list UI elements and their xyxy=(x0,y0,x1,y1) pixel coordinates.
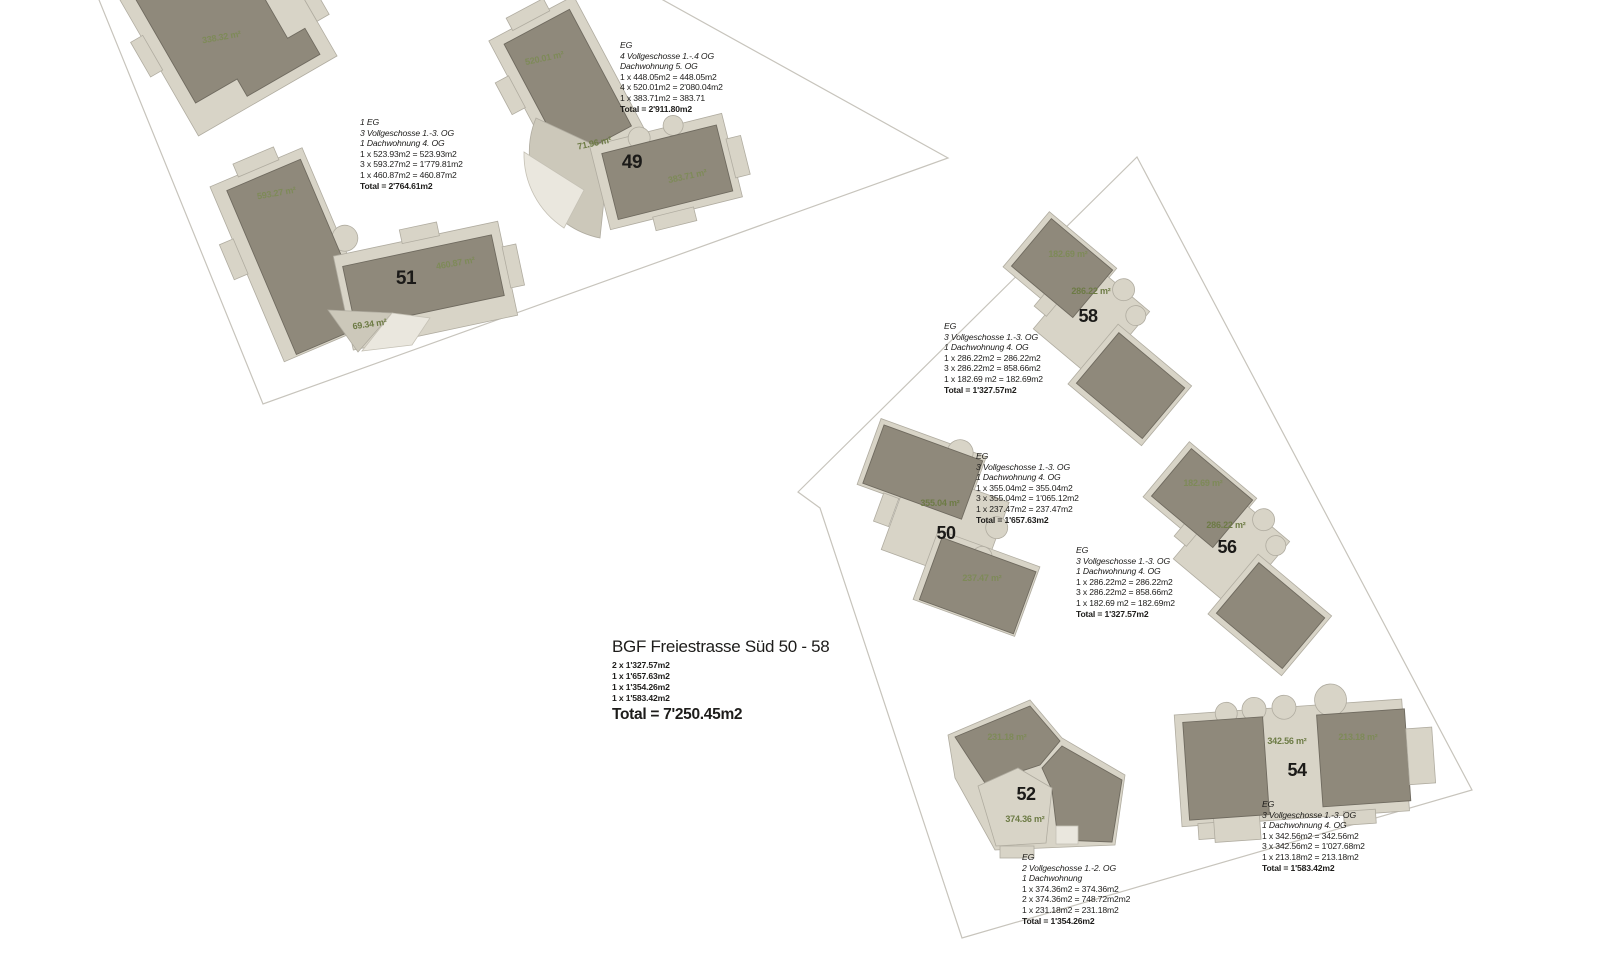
building-52-annotation: EG 2 Vollgeschosse 1.-2. OG 1 Dachwohnun… xyxy=(1022,852,1130,926)
calc-line: 1 x 460.87m2 = 460.87m2 xyxy=(360,170,463,181)
total-line: Total = 2'764.61m2 xyxy=(360,181,463,192)
calc-line: 1 x 355.04m2 = 355.04m2 xyxy=(976,483,1079,494)
building-56-annotation: EG 3 Vollgeschosse 1.-3. OG 1 Dachwohnun… xyxy=(1076,545,1175,619)
calc-line: 1 x 523.93m2 = 523.93m2 xyxy=(360,149,463,160)
area-label: 213.18 m² xyxy=(1338,732,1377,742)
area-label: 355.04 m² xyxy=(920,498,959,508)
calc-line: 1 x 286.22m2 = 286.22m2 xyxy=(944,353,1043,364)
site-plan-canvas: 338.32 m² 593.27 m² 460.87 m² 69.34 m² 5… xyxy=(0,0,1600,960)
usage-line: 4 Vollgeschosse 1.-.4 OG xyxy=(620,51,723,62)
sum-line: 1 x 1'657.63m2 xyxy=(612,671,829,682)
area-label: 374.36 m² xyxy=(1005,814,1044,824)
area-label: 182.69 m² xyxy=(1183,478,1222,488)
calc-line: 1 x 213.18m2 = 213.18m2 xyxy=(1262,852,1365,863)
building-number: 51 xyxy=(396,268,417,289)
calc-line: 1 x 237.47m2 = 237.47m2 xyxy=(976,504,1079,515)
building-54-annotation: EG 3 Vollgeschosse 1.-3. OG 1 Dachwohnun… xyxy=(1262,799,1365,873)
calc-line: 2 x 374.36m2 = 748.72m2m2 xyxy=(1022,894,1130,905)
calc-line: 3 x 355.04m2 = 1'065.12m2 xyxy=(976,493,1079,504)
usage-line: 3 Vollgeschosse 1.-3. OG xyxy=(1262,810,1365,821)
usage-line: 1 Dachwohnung 4. OG xyxy=(1076,566,1175,577)
usage-line: EG xyxy=(976,451,1079,462)
building-number: 49 xyxy=(622,152,642,173)
sum-line: 1 x 1'583.42m2 xyxy=(612,693,829,704)
building-number: 54 xyxy=(1287,760,1307,780)
building-number: 58 xyxy=(1078,306,1098,326)
calc-line: 1 x 286.22m2 = 286.22m2 xyxy=(1076,577,1175,588)
sum-line: 2 x 1'327.57m2 xyxy=(612,660,829,671)
building-number: 50 xyxy=(936,523,956,543)
terrace xyxy=(1056,826,1078,844)
usage-line: 1 EG xyxy=(360,117,463,128)
page-title: BGF Freiestrasse Süd 50 - 58 xyxy=(612,637,829,657)
usage-line: 1 Dachwohnung 4. OG xyxy=(1262,820,1365,831)
area-label: 231.18 m² xyxy=(987,732,1026,742)
calc-line: 1 x 383.71m2 = 383.71 xyxy=(620,93,723,104)
usage-line: EG xyxy=(944,321,1043,332)
upper-floors xyxy=(1317,709,1411,807)
usage-line: 1 Dachwohnung xyxy=(1022,873,1130,884)
usage-line: 1 Dachwohnung 4. OG xyxy=(360,138,463,149)
calc-line: 1 x 448.05m2 = 448.05m2 xyxy=(620,72,723,83)
terrace xyxy=(1406,727,1436,785)
area-label: 342.56 m² xyxy=(1267,736,1306,746)
building-51-annotation: 1 EG 3 Vollgeschosse 1.-3. OG 1 Dachwohn… xyxy=(360,117,463,191)
total-line: Total = 1'583.42m2 xyxy=(1262,863,1365,874)
usage-line: Dachwohnung 5. OG xyxy=(620,61,723,72)
total-line: Total = 1'354.26m2 xyxy=(1022,916,1130,927)
area-label: 182.69 m² xyxy=(1048,249,1087,259)
usage-line: 3 Vollgeschosse 1.-3. OG xyxy=(360,128,463,139)
building-number: 56 xyxy=(1217,537,1237,557)
calc-line: 1 x 182.69 m2 = 182.69m2 xyxy=(944,374,1043,385)
total-line: Total = 2'911.80m2 xyxy=(620,104,723,115)
usage-line: 1 Dachwohnung 4. OG xyxy=(976,472,1079,483)
area-label: 286.22 m² xyxy=(1206,520,1245,530)
total-line: Total = 1'327.57m2 xyxy=(944,385,1043,396)
total-line: Total = 1'657.63m2 xyxy=(976,515,1079,526)
calc-line: 3 x 286.22m2 = 858.66m2 xyxy=(1076,587,1175,598)
building-number: 52 xyxy=(1016,784,1036,804)
calc-line: 4 x 520.01m2 = 2'080.04m2 xyxy=(620,82,723,93)
grand-total: Total = 7'250.45m2 xyxy=(612,706,829,724)
calc-line: 1 x 231.18m2 = 231.18m2 xyxy=(1022,905,1130,916)
calc-line: 1 x 182.69 m2 = 182.69m2 xyxy=(1076,598,1175,609)
usage-line: 2 Vollgeschosse 1.-2. OG xyxy=(1022,863,1130,874)
area-label: 237.47 m² xyxy=(962,573,1001,583)
building-58-annotation: EG 3 Vollgeschosse 1.-3. OG 1 Dachwohnun… xyxy=(944,321,1043,395)
upper-floors xyxy=(1183,717,1270,820)
usage-line: 3 Vollgeschosse 1.-3. OG xyxy=(944,332,1043,343)
bgf-summary-block: BGF Freiestrasse Süd 50 - 58 2 x 1'327.5… xyxy=(612,637,829,724)
total-line: Total = 1'327.57m2 xyxy=(1076,609,1175,620)
calc-line: 1 x 374.36m2 = 374.36m2 xyxy=(1022,884,1130,895)
building-49-annotation: EG 4 Vollgeschosse 1.-.4 OG Dachwohnung … xyxy=(620,40,723,114)
sum-line: 1 x 1'354.26m2 xyxy=(612,682,829,693)
usage-line: EG xyxy=(1262,799,1365,810)
usage-line: 3 Vollgeschosse 1.-3. OG xyxy=(976,462,1079,473)
calc-line: 3 x 286.22m2 = 858.66m2 xyxy=(944,363,1043,374)
usage-line: EG xyxy=(1076,545,1175,556)
area-label: 286.22 m² xyxy=(1071,286,1110,296)
usage-line: 1 Dachwohnung 4. OG xyxy=(944,342,1043,353)
usage-line: EG xyxy=(620,40,723,51)
calc-line: 3 x 342.56m2 = 1'027.68m2 xyxy=(1262,841,1365,852)
building-50-annotation: EG 3 Vollgeschosse 1.-3. OG 1 Dachwohnun… xyxy=(976,451,1079,525)
calc-line: 1 x 342.56m2 = 342.56m2 xyxy=(1262,831,1365,842)
usage-line: EG xyxy=(1022,852,1130,863)
calc-line: 3 x 593.27m2 = 1'779.81m2 xyxy=(360,159,463,170)
usage-line: 3 Vollgeschosse 1.-3. OG xyxy=(1076,556,1175,567)
